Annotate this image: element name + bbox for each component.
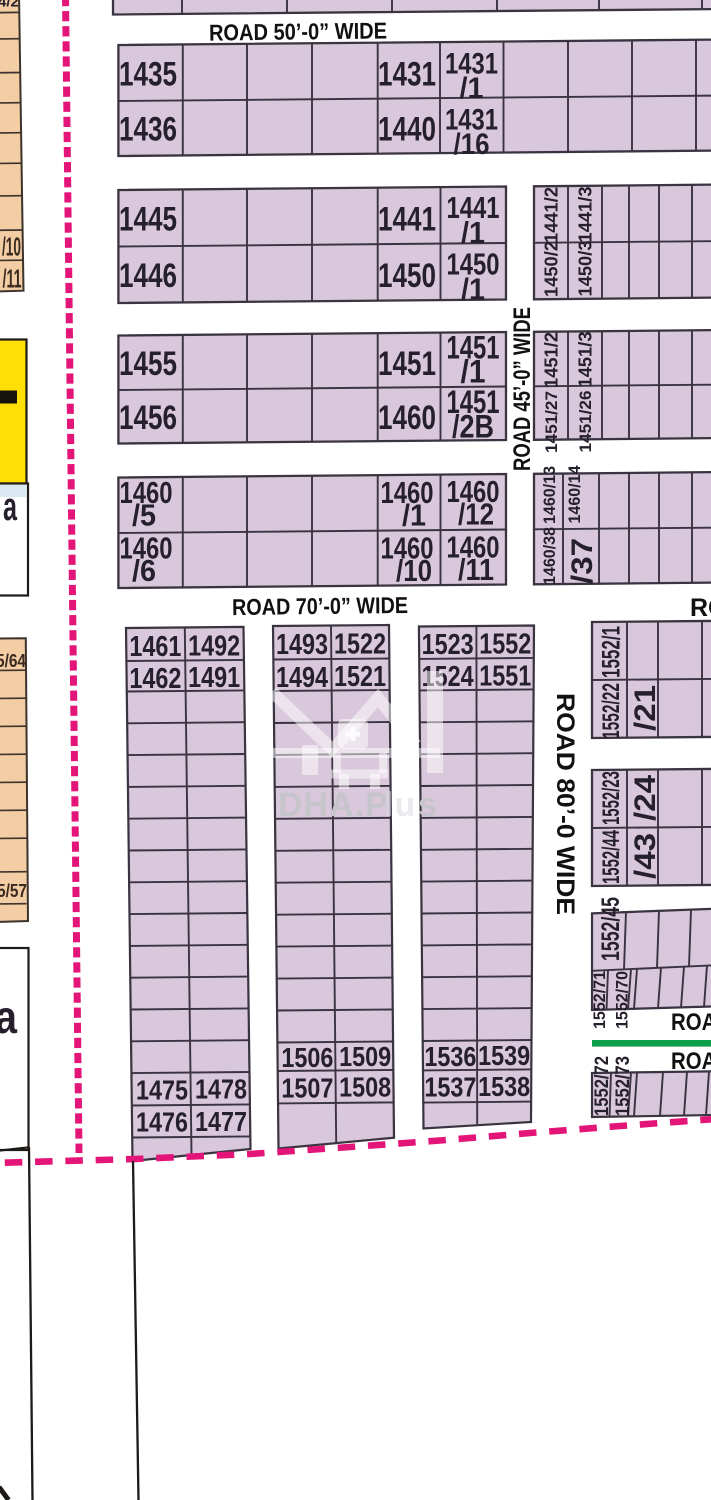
svg-text:/24: /24 [629, 775, 662, 821]
svg-text:/37: /37 [566, 538, 599, 584]
svg-text:lu: lu [384, 786, 416, 824]
svg-text:1451/27: 1451/27 [542, 391, 561, 453]
svg-text:1552/22: 1552/22 [598, 683, 625, 739]
svg-text:/6: /6 [132, 553, 156, 588]
svg-text:/11: /11 [3, 264, 22, 294]
svg-text:ROAD 50’-0” WIDE: ROAD 50’-0” WIDE [209, 17, 387, 45]
svg-text:1552/73: 1552/73 [613, 1056, 634, 1116]
svg-text:1451: 1451 [378, 345, 436, 383]
svg-text:/1: /1 [461, 215, 485, 250]
svg-text:ROAD: ROAD [671, 1009, 711, 1036]
svg-text:/11: /11 [458, 552, 494, 587]
svg-text:/2B: /2B [452, 409, 494, 445]
svg-text:ROAD: ROAD [690, 594, 711, 622]
svg-text:/43: /43 [629, 833, 662, 879]
svg-text:1475: 1475 [136, 1075, 188, 1106]
svg-text:1552/1: 1552/1 [598, 626, 626, 678]
svg-text:1537: 1537 [424, 1072, 476, 1103]
svg-text:1552/72: 1552/72 [592, 1056, 613, 1116]
svg-text:1440: 1440 [378, 111, 436, 149]
svg-text:1441/3: 1441/3 [575, 187, 595, 243]
svg-text:1552: 1552 [479, 629, 531, 661]
svg-text:1431: 1431 [378, 55, 436, 93]
svg-text:1441/2: 1441/2 [541, 187, 561, 243]
svg-text:ROAD 70’-0” WIDE: ROAD 70’-0” WIDE [232, 592, 408, 620]
svg-text:1478: 1478 [195, 1074, 247, 1105]
svg-text:/5: /5 [132, 498, 156, 533]
svg-text:a: a [3, 485, 17, 529]
svg-text:a: a [0, 991, 17, 1043]
svg-text:1441: 1441 [378, 201, 436, 239]
svg-text:1456: 1456 [119, 399, 177, 437]
svg-text:1494: 1494 [276, 662, 328, 694]
svg-text:1450: 1450 [378, 257, 436, 295]
svg-text:1451/2: 1451/2 [541, 332, 561, 388]
svg-text:1536: 1536 [424, 1041, 476, 1072]
svg-text:1552/70: 1552/70 [613, 971, 632, 1029]
svg-text:1450/3: 1450/3 [575, 241, 595, 297]
svg-text:1460/14: 1460/14 [565, 465, 584, 524]
svg-text:s: s [418, 786, 437, 824]
svg-text:5/64: 5/64 [0, 651, 26, 671]
svg-text:1460/13: 1460/13 [540, 466, 559, 524]
svg-text:1435: 1435 [119, 55, 177, 93]
svg-text:1538: 1538 [478, 1071, 530, 1102]
svg-text:1493: 1493 [276, 629, 328, 661]
svg-text:1446: 1446 [119, 257, 177, 295]
svg-text:1450/2: 1450/2 [541, 241, 561, 297]
svg-text:1539: 1539 [478, 1040, 530, 1071]
svg-text:1476: 1476 [136, 1107, 188, 1138]
svg-text:1461: 1461 [129, 631, 181, 663]
svg-text:1507: 1507 [281, 1072, 333, 1103]
svg-text:1521: 1521 [334, 661, 386, 693]
svg-text:1552/45: 1552/45 [597, 897, 625, 961]
svg-text:/10: /10 [2, 232, 21, 262]
svg-text:1491: 1491 [188, 662, 240, 694]
svg-text:1508: 1508 [339, 1072, 391, 1103]
svg-text:1523: 1523 [422, 629, 474, 661]
svg-text:DHA.P: DHA.P [278, 786, 389, 824]
svg-text:1522: 1522 [334, 629, 386, 661]
svg-text:1451/26: 1451/26 [576, 391, 595, 453]
svg-text:1462: 1462 [129, 663, 181, 695]
svg-text:1455: 1455 [119, 345, 177, 383]
svg-text:/10: /10 [396, 553, 432, 588]
svg-text:1460/38: 1460/38 [540, 527, 559, 585]
svg-text:1509: 1509 [339, 1041, 391, 1072]
svg-text:1552/44: 1552/44 [598, 830, 625, 884]
svg-text:1552/23: 1552/23 [598, 771, 625, 825]
svg-text:1451/3: 1451/3 [575, 332, 595, 388]
svg-text:ROAD 45’-0” WIDE: ROAD 45’-0” WIDE [509, 307, 536, 471]
svg-text:/16: /16 [454, 128, 490, 161]
svg-text:1552/71: 1552/71 [590, 971, 609, 1029]
svg-text:1445: 1445 [119, 201, 177, 239]
svg-text:/1: /1 [461, 271, 485, 306]
svg-text:/1: /1 [402, 498, 426, 533]
svg-text:1460: 1460 [378, 399, 436, 437]
svg-text:1551: 1551 [479, 660, 531, 692]
svg-text:1436: 1436 [119, 111, 177, 149]
svg-text:/21: /21 [629, 685, 662, 731]
svg-text:1492: 1492 [188, 630, 240, 662]
svg-text:1506: 1506 [281, 1042, 333, 1073]
svg-text:4/2: 4/2 [0, 0, 19, 11]
svg-text:1477: 1477 [195, 1106, 247, 1137]
svg-text:ROAD 80’-0 WIDE: ROAD 80’-0 WIDE [551, 693, 579, 915]
svg-text:/1: /1 [460, 72, 484, 105]
svg-text:/12: /12 [458, 497, 494, 532]
svg-text:5/57: 5/57 [0, 881, 27, 901]
